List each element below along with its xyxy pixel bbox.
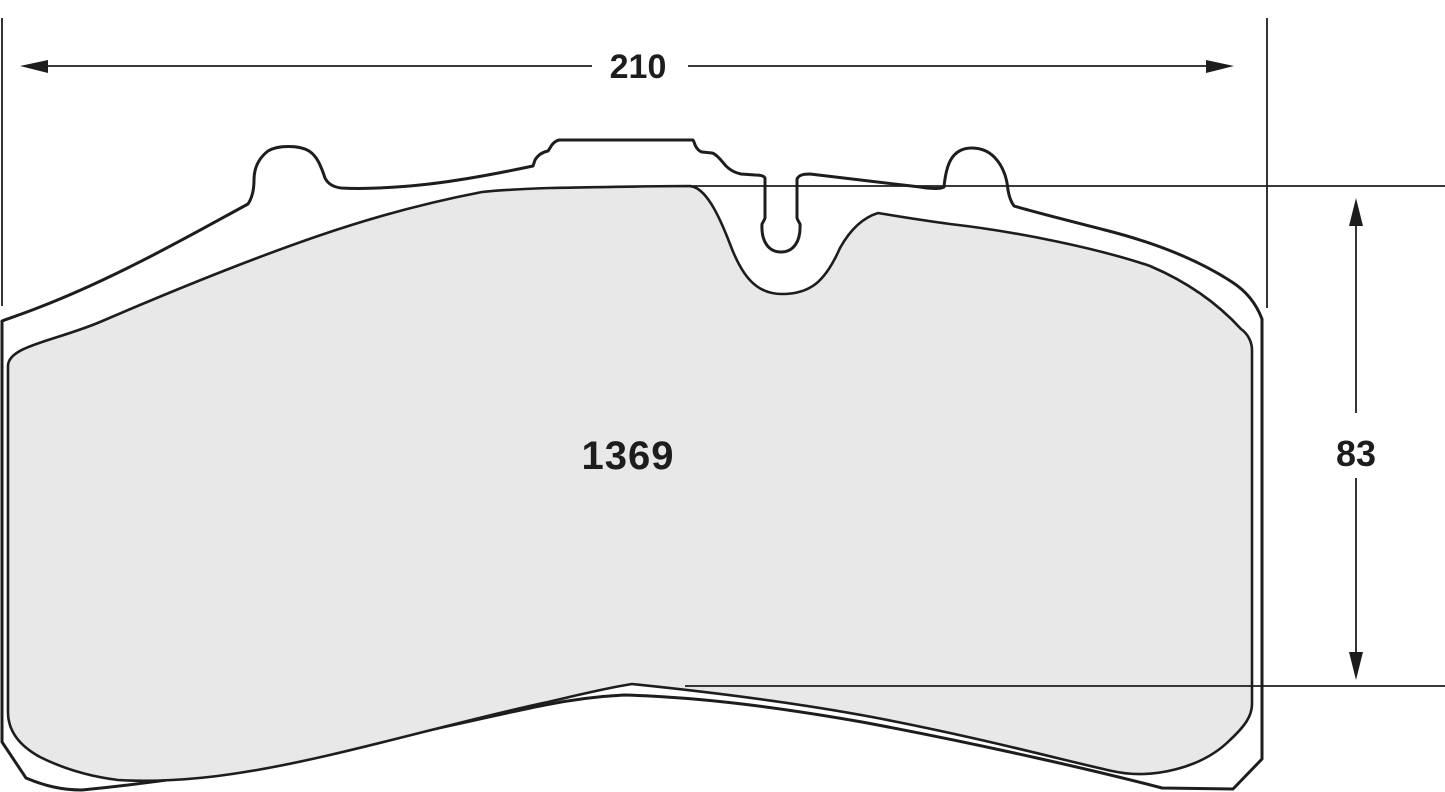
height-arrowhead-down-icon — [1349, 652, 1363, 680]
width-arrowhead-left-icon — [20, 60, 48, 73]
width-arrowhead-right-icon — [1206, 60, 1234, 73]
height-arrowhead-up-icon — [1349, 198, 1363, 226]
brake-pad-technical-drawing: 210 83 1369 — [0, 0, 1445, 792]
height-dimension-label: 83 — [1336, 433, 1376, 474]
width-dimension-label: 210 — [610, 48, 667, 86]
part-number-label: 1369 — [582, 434, 675, 478]
drawing-canvas: 210 83 1369 — [0, 0, 1445, 792]
